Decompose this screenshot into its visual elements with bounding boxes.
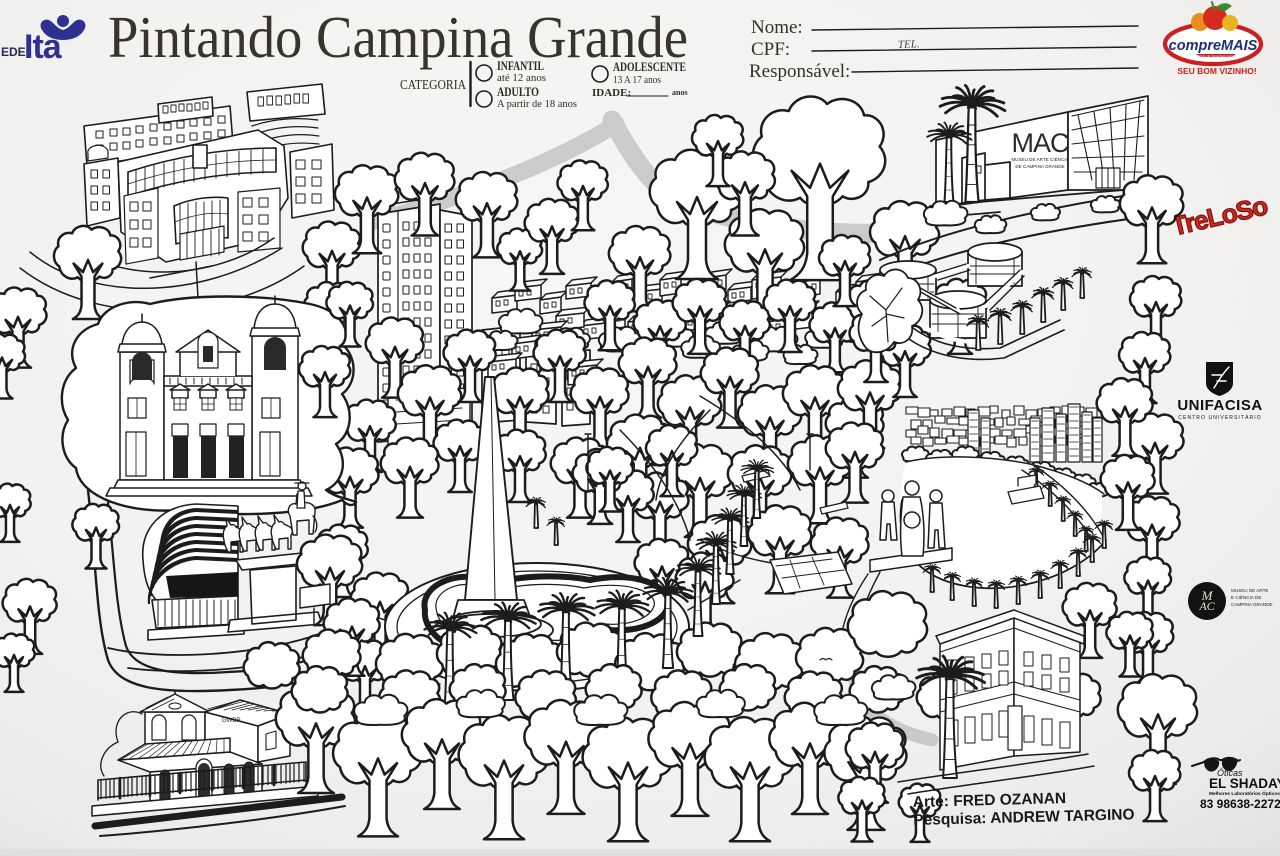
svg-text:SEU BOM VIZINHO!: SEU BOM VIZINHO!: [1177, 66, 1257, 76]
svg-text:IDADE:: IDADE:: [592, 87, 631, 99]
svg-text:Rede de Supermercados: Rede de Supermercados: [1198, 55, 1234, 59]
svg-text:GWBR: GWBR: [222, 718, 241, 724]
svg-text:Pintando Campina Grande: Pintando Campina Grande: [108, 4, 688, 70]
svg-text:TEL.: TEL.: [898, 38, 920, 51]
svg-text:EL SHADAY: EL SHADAY: [1209, 776, 1280, 791]
svg-text:compreMAIS: compreMAIS: [1169, 38, 1258, 54]
svg-text:MAC: MAC: [1012, 128, 1070, 158]
svg-text:anos: anos: [672, 88, 688, 97]
svg-text:UNIFACISA: UNIFACISA: [1177, 397, 1262, 414]
svg-text:DE CAMPINA GRANDE: DE CAMPINA GRANDE: [1015, 164, 1064, 169]
svg-text:até 12 anos: até 12 anos: [497, 72, 546, 84]
svg-text:INFANTIL: INFANTIL: [497, 59, 544, 73]
svg-text:CENTRO UNIVERSITÁRIO: CENTRO UNIVERSITÁRIO: [1178, 414, 1261, 421]
svg-text:AC: AC: [1198, 599, 1215, 613]
svg-text:83 98638-2272: 83 98638-2272: [1200, 797, 1280, 811]
svg-text:CATEGORIA: CATEGORIA: [400, 78, 467, 93]
svg-text:ADOLESCENTE: ADOLESCENTE: [613, 60, 686, 74]
svg-text:EDE: EDE: [1, 45, 26, 59]
svg-text:A partir de 18 anos: A partir de 18 anos: [497, 98, 577, 110]
svg-text:MUSEU DE ARTE CIÊNCIA: MUSEU DE ARTE CIÊNCIA: [1011, 155, 1069, 162]
svg-text:CAMPINA GRANDE: CAMPINA GRANDE: [1231, 602, 1273, 607]
svg-text:CPF:: CPF:: [751, 39, 790, 60]
svg-text:MUSEU DE ARTE: MUSEU DE ARTE: [1231, 588, 1268, 593]
svg-text:E CIÊNCIA DE: E CIÊNCIA DE: [1231, 593, 1261, 600]
svg-text:Responsável:: Responsável:: [749, 61, 850, 82]
svg-text:13 A 17 anos: 13 A 17 anos: [613, 74, 661, 86]
svg-text:Nome:: Nome:: [751, 17, 803, 38]
svg-text:ADULTO: ADULTO: [497, 85, 539, 99]
